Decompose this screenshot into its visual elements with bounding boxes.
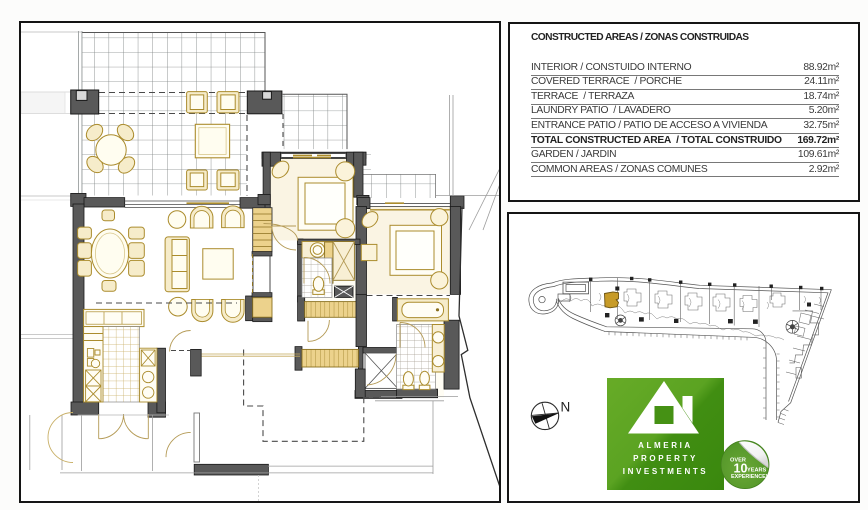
svg-text:N: N xyxy=(561,400,571,415)
svg-text:YEARS: YEARS xyxy=(747,468,767,474)
svg-text:EXPERIENCE!: EXPERIENCE! xyxy=(731,474,768,480)
